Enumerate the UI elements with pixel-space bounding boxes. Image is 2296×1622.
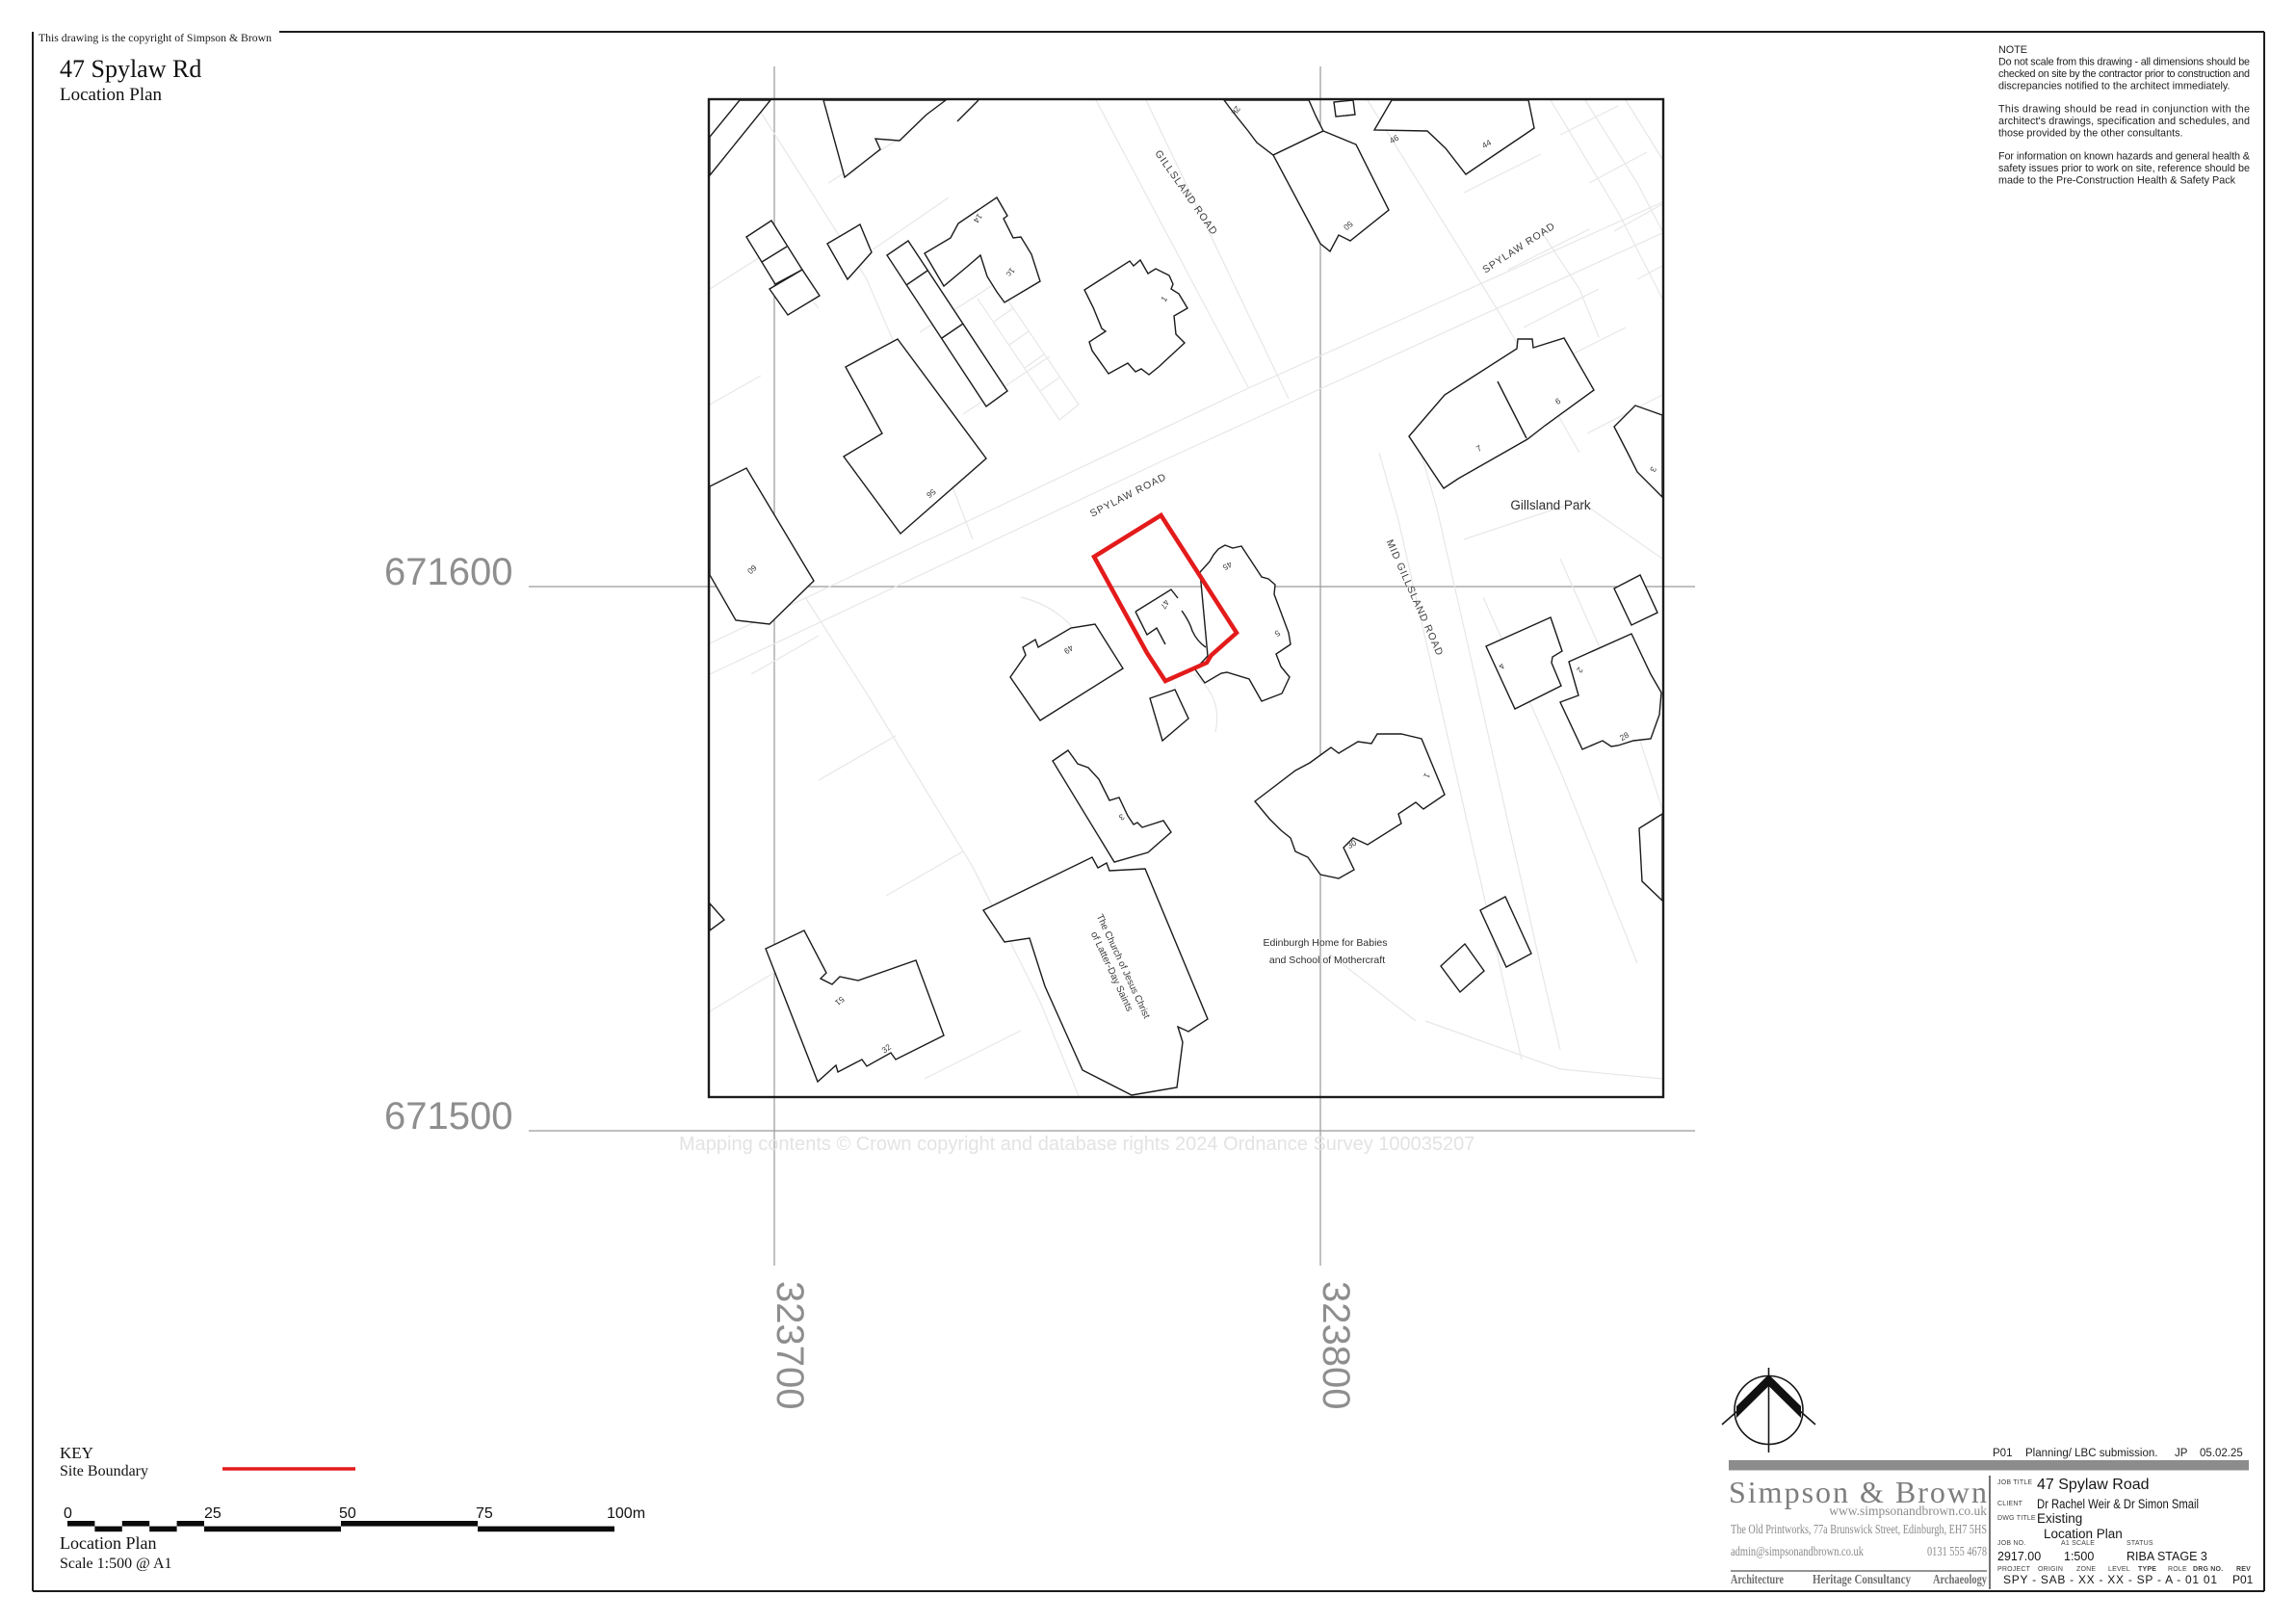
svg-text:made to the Pre-Construction H: made to the Pre-Construction Health & Sa… bbox=[1998, 175, 2236, 187]
svg-text:This drawing should be read in: This drawing should be read in conjuncti… bbox=[1998, 104, 2250, 116]
svg-text:Heritage Consultancy: Heritage Consultancy bbox=[1813, 1572, 1911, 1586]
svg-text:0131 555 4678: 0131 555 4678 bbox=[1927, 1544, 1987, 1558]
svg-text:Site Boundary: Site Boundary bbox=[60, 1463, 148, 1479]
svg-text:NOTE: NOTE bbox=[1998, 44, 2027, 56]
svg-text:A1 SCALE: A1 SCALE bbox=[2061, 1540, 2095, 1547]
svg-text:KEY: KEY bbox=[60, 1444, 93, 1462]
svg-text:safety issues prior to work on: safety issues prior to work on site, ref… bbox=[1998, 163, 2250, 174]
svg-text:1:500: 1:500 bbox=[2064, 1550, 2094, 1563]
svg-text:05.02.25: 05.02.25 bbox=[2200, 1448, 2243, 1459]
svg-text:ZONE: ZONE bbox=[2076, 1566, 2096, 1573]
svg-text:Location Plan: Location Plan bbox=[60, 1533, 156, 1553]
svg-text:checked on site by the contrac: checked on site by the contractor prior … bbox=[1998, 68, 2250, 80]
svg-text:JOB NO.: JOB NO. bbox=[1997, 1540, 2025, 1547]
svg-text:323700: 323700 bbox=[769, 1281, 811, 1409]
svg-text:and School of Mothercraft: and School of Mothercraft bbox=[1269, 955, 1385, 966]
svg-text:JP: JP bbox=[2175, 1448, 2188, 1459]
svg-text:DWG TITLE: DWG TITLE bbox=[1997, 1515, 2036, 1522]
svg-text:RIBA STAGE 3: RIBA STAGE 3 bbox=[2126, 1550, 2207, 1563]
svg-text:This drawing is the copyright: This drawing is the copyright of Simpson… bbox=[39, 31, 272, 44]
svg-text:Do not scale from this drawing: Do not scale from this drawing - all dim… bbox=[1998, 57, 2250, 68]
svg-text:ORIGIN: ORIGIN bbox=[2038, 1566, 2063, 1573]
svg-text:Architecture: Architecture bbox=[1731, 1572, 1784, 1586]
svg-text:TYPE: TYPE bbox=[2138, 1566, 2156, 1573]
svg-text:Dr Rachel Weir & Dr Simon Smai: Dr Rachel Weir & Dr Simon Smail bbox=[2037, 1497, 2199, 1511]
svg-text:Archaeology: Archaeology bbox=[1933, 1572, 1987, 1586]
svg-text:Existing: Existing bbox=[2037, 1511, 2082, 1526]
svg-text:discrepancies notified to the: discrepancies notified to the architect … bbox=[1998, 81, 2230, 92]
svg-text:those provided by the other co: those provided by the other consultants. bbox=[1998, 128, 2182, 140]
svg-text:Location Plan: Location Plan bbox=[2044, 1527, 2123, 1541]
svg-text:2917.00: 2917.00 bbox=[1997, 1550, 2041, 1563]
svg-text:100m: 100m bbox=[607, 1505, 645, 1522]
svg-text:STATUS: STATUS bbox=[2126, 1540, 2153, 1547]
svg-text:Mapping contents © Crown copyr: Mapping contents © Crown copyright and d… bbox=[679, 1134, 1474, 1155]
svg-text:Scale 1:500 @ A1: Scale 1:500 @ A1 bbox=[60, 1556, 172, 1572]
svg-text:25: 25 bbox=[204, 1505, 222, 1522]
svg-text:671500: 671500 bbox=[384, 1095, 512, 1138]
svg-text:47 Spylaw Rd: 47 Spylaw Rd bbox=[60, 55, 201, 83]
svg-text:JOB TITLE: JOB TITLE bbox=[1997, 1479, 2032, 1486]
svg-text:architect's drawings, specific: architect's drawings, specification and … bbox=[1998, 116, 2250, 127]
svg-text:For information on known hazar: For information on known hazards and gen… bbox=[1998, 151, 2251, 163]
svg-text:Edinburgh Home for Babies: Edinburgh Home for Babies bbox=[1264, 937, 1388, 949]
svg-text:PROJECT: PROJECT bbox=[1997, 1566, 2031, 1573]
svg-text:P01: P01 bbox=[1993, 1448, 2012, 1459]
svg-text:DRG NO.: DRG NO. bbox=[2193, 1566, 2223, 1573]
svg-text:75: 75 bbox=[476, 1505, 493, 1522]
svg-text:0: 0 bbox=[64, 1505, 72, 1522]
svg-text:SPY - SAB - XX - XX - SP - A -: SPY - SAB - XX - XX - SP - A - 01 01 bbox=[2003, 1573, 2217, 1586]
svg-text:323800: 323800 bbox=[1315, 1281, 1357, 1409]
svg-text:47 Spylaw Road: 47 Spylaw Road bbox=[2037, 1477, 2150, 1493]
svg-text:REV: REV bbox=[2236, 1566, 2251, 1573]
svg-text:671600: 671600 bbox=[384, 551, 512, 593]
svg-text:www.simpsonandbrown.co.uk: www.simpsonandbrown.co.uk bbox=[1829, 1504, 1987, 1518]
svg-text:Gillsland Park: Gillsland Park bbox=[1510, 498, 1591, 512]
svg-text:LEVEL: LEVEL bbox=[2108, 1566, 2130, 1573]
svg-text:50: 50 bbox=[339, 1505, 356, 1522]
svg-text:P01: P01 bbox=[2232, 1573, 2254, 1586]
svg-text:Location Plan: Location Plan bbox=[60, 85, 163, 105]
svg-text:The Old Printworks, 77a Brunsw: The Old Printworks, 77a Brunswick Street… bbox=[1731, 1522, 1987, 1536]
svg-text:ROLE: ROLE bbox=[2168, 1566, 2187, 1573]
svg-text:Planning/ LBC submission.: Planning/ LBC submission. bbox=[2025, 1448, 2157, 1459]
svg-text:admin@simpsonandbrown.co.uk: admin@simpsonandbrown.co.uk bbox=[1731, 1544, 1864, 1558]
svg-text:CLIENT: CLIENT bbox=[1997, 1501, 2023, 1507]
